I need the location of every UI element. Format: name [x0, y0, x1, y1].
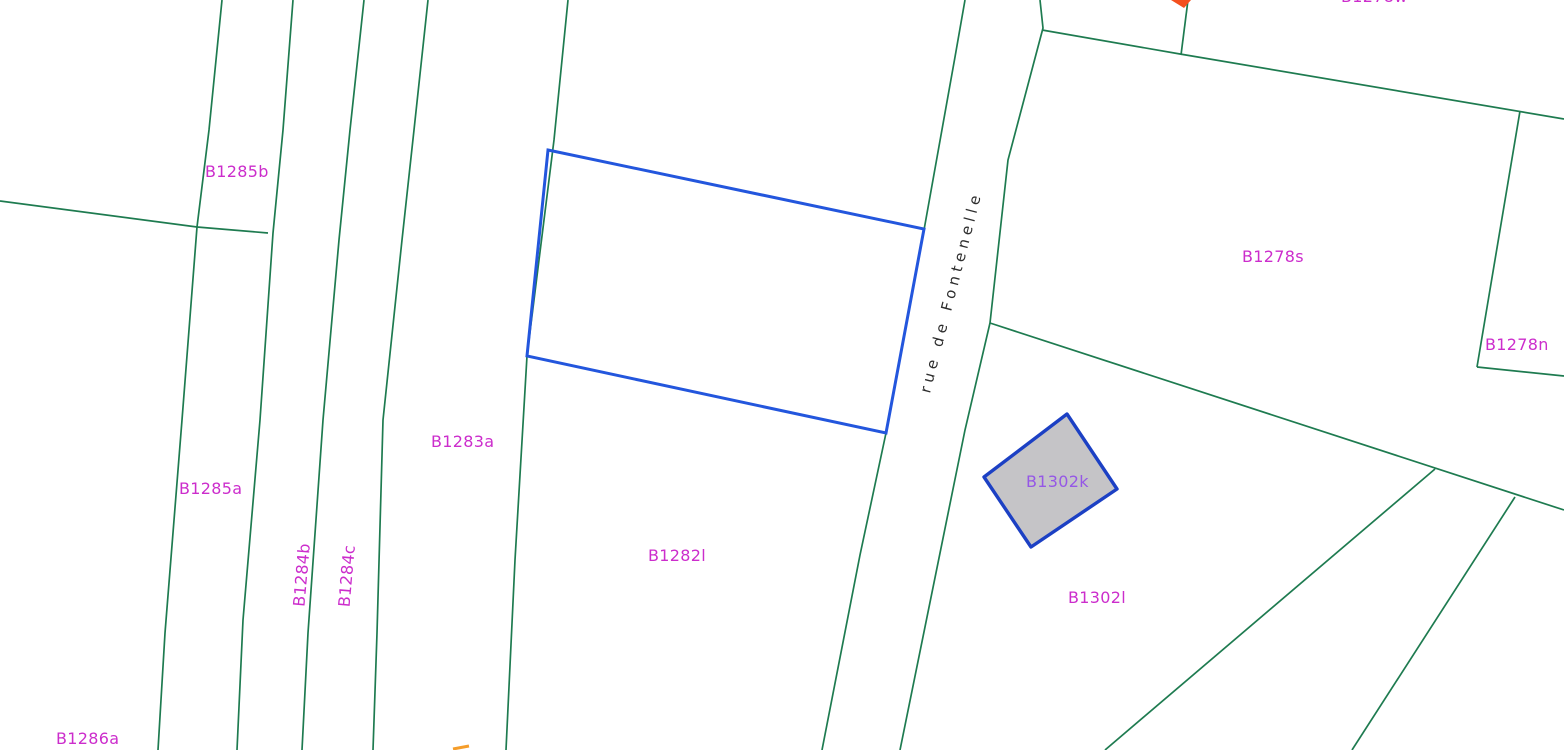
parcel-boundary-line	[506, 0, 568, 750]
parcel-label-b1302l: B1302l	[1068, 589, 1126, 607]
parcel-label-b1283a: B1283a	[431, 433, 494, 451]
parcel-boundary-line	[237, 0, 293, 750]
parcel-label-b1285a: B1285a	[179, 480, 242, 498]
orange-marker-bottom-icon	[453, 746, 469, 749]
parcel-label-b1278w: B1278w	[1341, 0, 1408, 6]
street-edge-left	[822, 0, 965, 750]
parcel-label-b1278n: B1278n	[1485, 336, 1549, 354]
parcel-boundary-line	[1105, 469, 1435, 750]
parcel-label-b1286a: B1286a	[56, 730, 119, 748]
parcel-boundary-line	[0, 201, 268, 233]
parcel-boundary-line	[1477, 111, 1520, 367]
parcel-boundary-line	[1181, 0, 1188, 55]
cadastral-map-layer	[0, 0, 1564, 750]
parcel-boundary-line	[1042, 30, 1564, 119]
parcel-label-b1282l: B1282l	[648, 547, 706, 565]
parcel-label-b1285b: B1285b	[205, 163, 269, 181]
parcel-boundary-line	[1477, 367, 1564, 376]
parcel-label-b1302k: B1302k	[1026, 473, 1089, 491]
parcel-boundary-line	[1352, 497, 1515, 750]
map-canvas[interactable]: B1285b B1285a B1284b B1284c B1283a B1282…	[0, 0, 1564, 750]
parcel-boundary-line	[302, 0, 364, 750]
parcel-boundary-line	[373, 0, 428, 750]
selected-parcel[interactable]	[527, 150, 924, 433]
parcel-boundary-line	[158, 0, 222, 750]
parcel-label-b1278s: B1278s	[1242, 248, 1304, 266]
